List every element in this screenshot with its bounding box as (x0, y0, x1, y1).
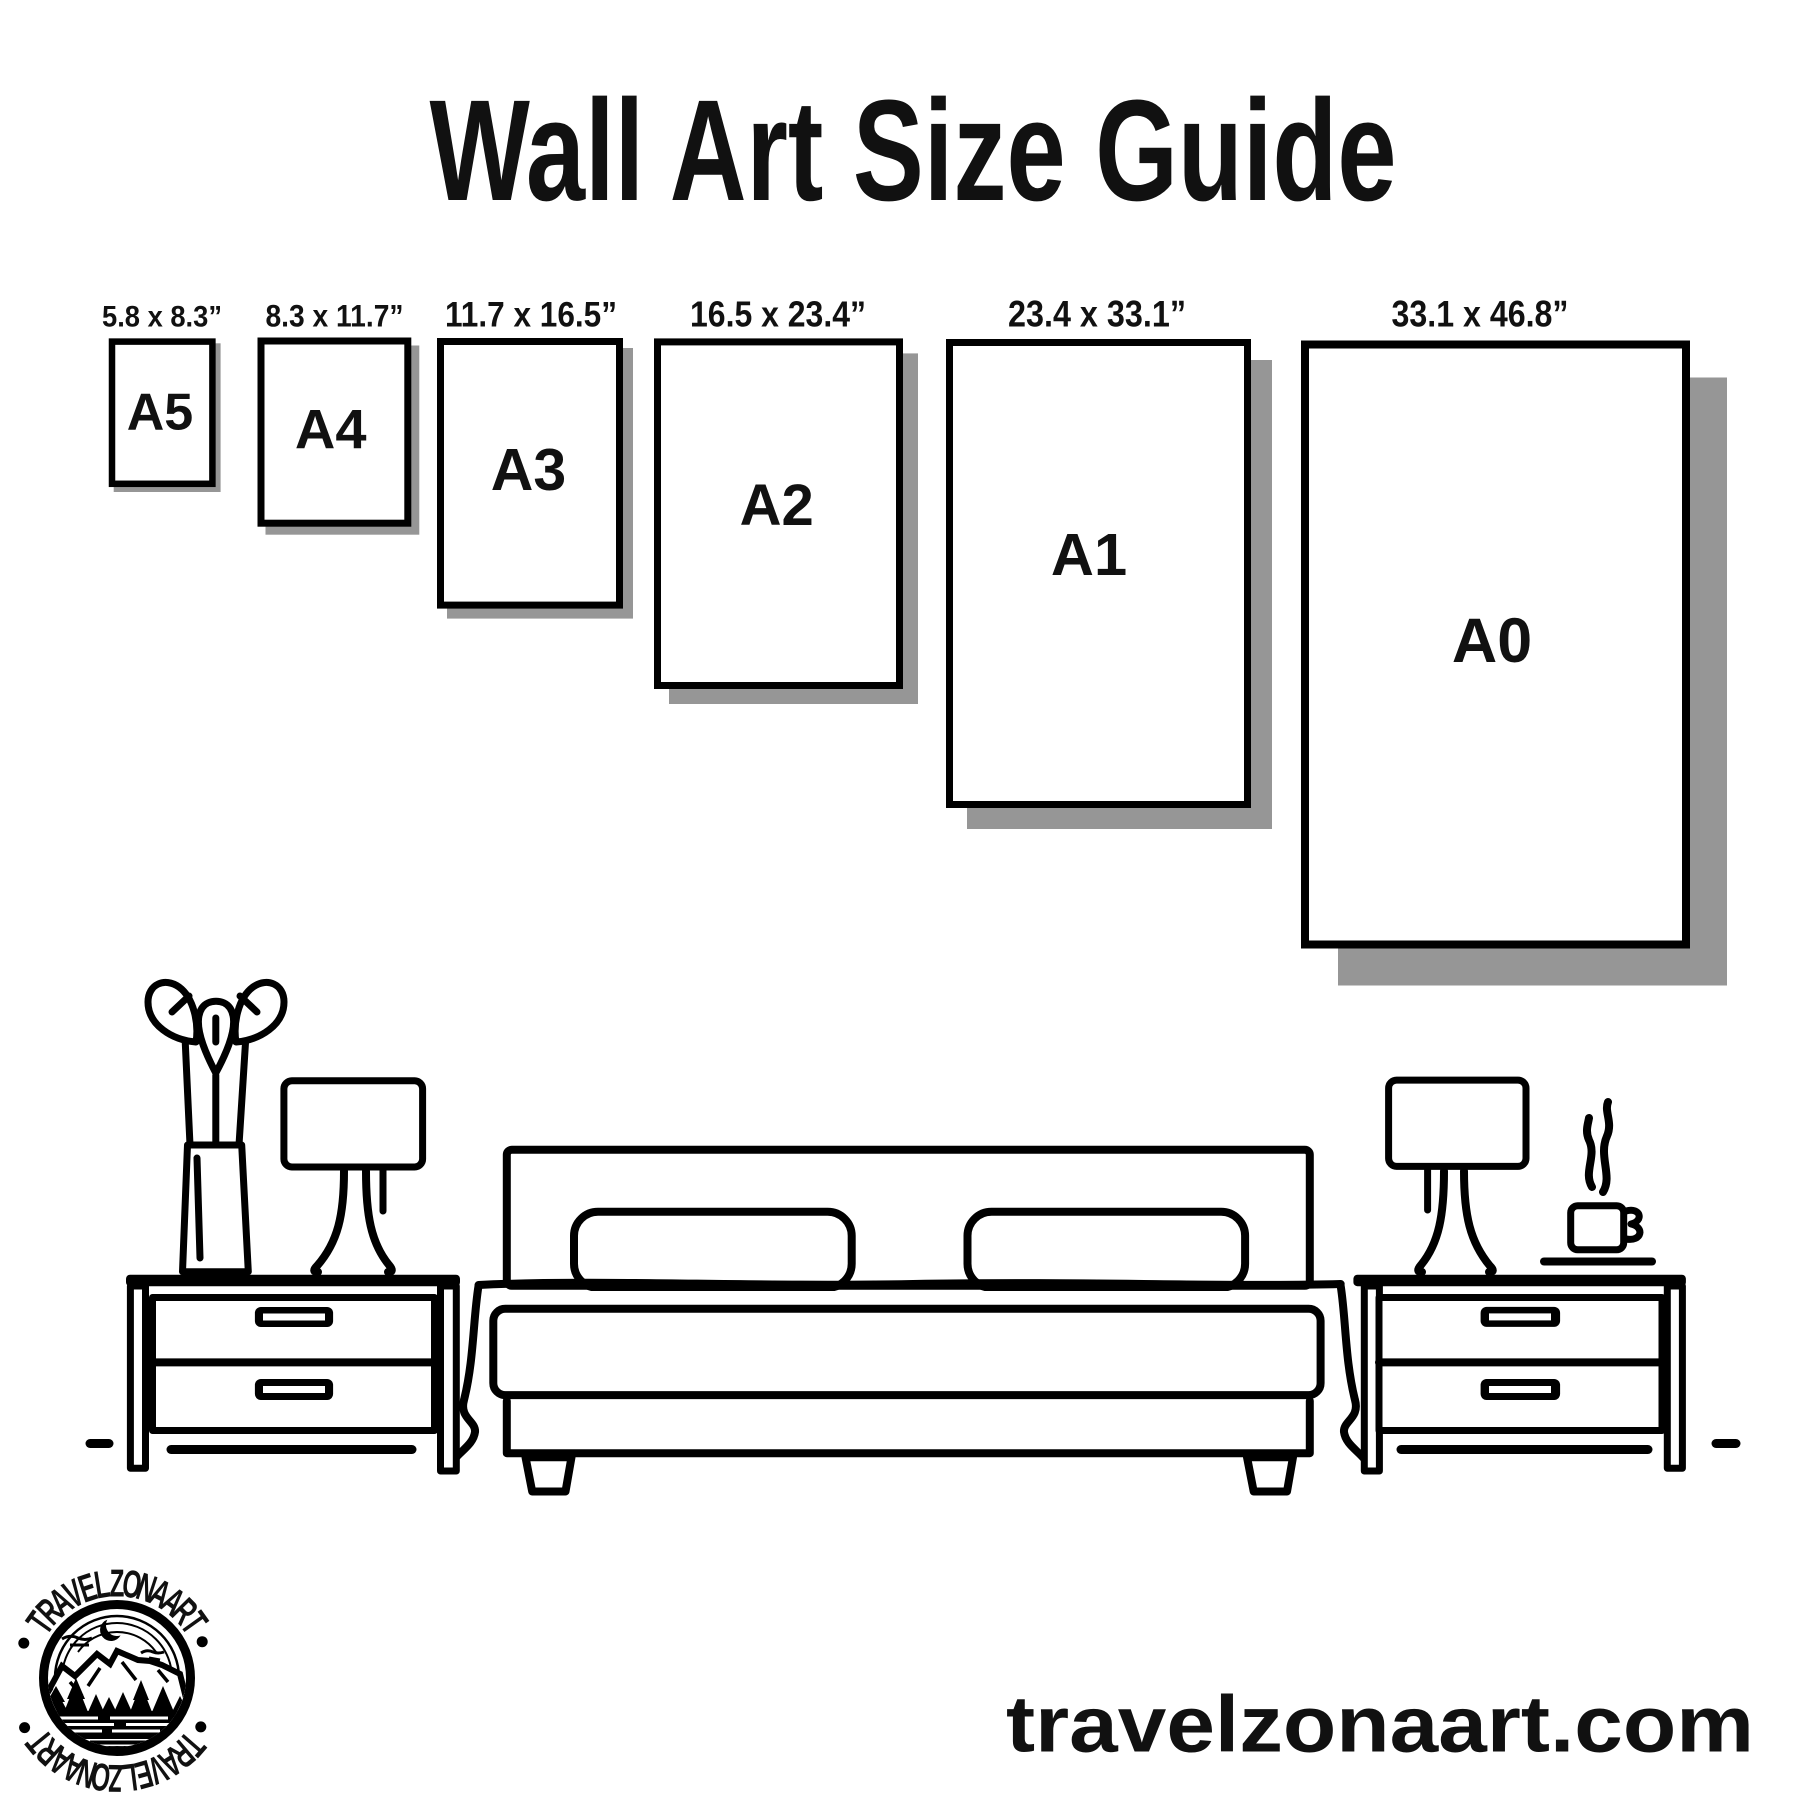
svg-text:A1: A1 (1051, 521, 1127, 588)
svg-text:A4: A4 (295, 398, 367, 461)
svg-text:A2: A2 (740, 473, 814, 538)
svg-text:33.1 x 46.8”: 33.1 x 46.8” (1392, 293, 1569, 335)
svg-text:11.7 x 16.5”: 11.7 x 16.5” (445, 296, 617, 335)
svg-text:Wall Art Size Guide: Wall Art Size Guide (430, 70, 1397, 231)
svg-text:travelzonaart.com: travelzonaart.com (1006, 1680, 1754, 1769)
svg-text:5.8 x 8.3”: 5.8 x 8.3” (102, 301, 222, 334)
svg-text:A5: A5 (127, 384, 193, 442)
svg-text:A3: A3 (491, 437, 566, 503)
svg-text:A0: A0 (1452, 606, 1532, 676)
svg-text:23.4 x 33.1”: 23.4 x 33.1” (1008, 293, 1186, 335)
svg-text:8.3 x 11.7”: 8.3 x 11.7” (266, 298, 404, 334)
svg-text:16.5 x 23.4”: 16.5 x 23.4” (690, 294, 866, 335)
